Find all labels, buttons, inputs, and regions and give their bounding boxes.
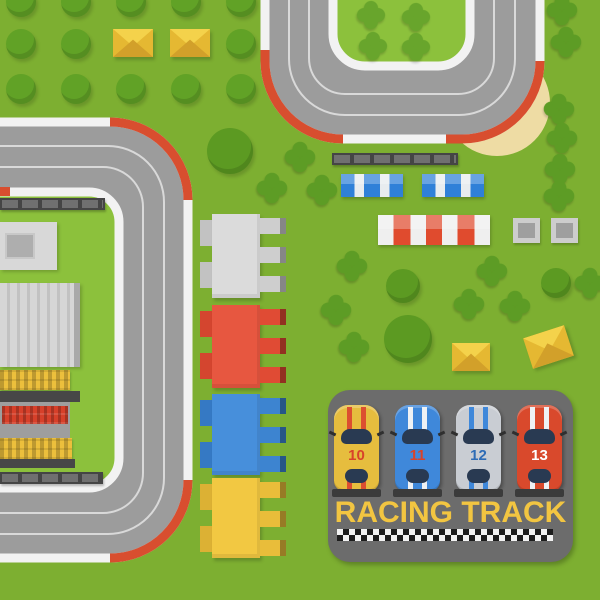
warehouse-roof xyxy=(0,283,80,367)
grandstand-walkway xyxy=(0,459,75,468)
tree-icon xyxy=(384,315,432,363)
concrete-tile xyxy=(513,218,540,243)
pit-building-blue xyxy=(200,394,287,475)
grandstand-yellow-seats xyxy=(0,370,70,390)
rear-window xyxy=(467,469,490,483)
pit-building-red xyxy=(200,305,287,388)
race-car-10: 10 xyxy=(334,405,379,497)
tree-icon xyxy=(116,74,146,104)
grandstand-red-seats xyxy=(2,406,68,424)
car-number: 11 xyxy=(395,447,440,464)
rear-window xyxy=(406,469,429,483)
building-roof xyxy=(212,478,260,558)
barrier-wall xyxy=(332,153,458,165)
building-roof xyxy=(212,214,260,298)
racing-track-illustration: 10 11 12 xyxy=(0,0,600,600)
tree-icon xyxy=(226,29,256,59)
building-tab xyxy=(260,540,286,556)
pit-building-yellow xyxy=(200,478,287,558)
race-car-12: 12 xyxy=(456,405,501,497)
building-tab xyxy=(260,218,286,234)
tree-icon xyxy=(386,269,420,303)
car-number: 12 xyxy=(456,447,501,464)
concrete-tile xyxy=(551,218,578,243)
blue-awning xyxy=(422,174,484,197)
tree-icon xyxy=(6,74,36,104)
tree-icon xyxy=(61,29,91,59)
track-loop-right-infield xyxy=(333,0,470,66)
racing-track-title: RACING TRACK xyxy=(328,496,573,530)
grandstand-yellow-seats xyxy=(0,438,72,459)
tent-icon xyxy=(170,29,210,57)
blue-awning xyxy=(341,174,403,197)
rear-window xyxy=(528,469,551,483)
racing-track-panel: 10 11 12 xyxy=(328,390,573,562)
building-tab xyxy=(260,247,286,263)
tree-icon xyxy=(207,128,253,174)
building-tab xyxy=(260,276,286,292)
tree-icon xyxy=(171,74,201,104)
building-tab xyxy=(260,338,286,354)
building-roof xyxy=(212,394,260,475)
pit-building-white xyxy=(200,214,287,298)
barrier-wall xyxy=(0,198,105,210)
building-tab xyxy=(260,456,286,472)
tree-icon xyxy=(226,74,256,104)
windshield xyxy=(524,429,555,444)
barrier-wall xyxy=(0,472,103,484)
checkered-strip xyxy=(337,529,553,541)
windshield xyxy=(463,429,494,444)
car-number: 13 xyxy=(517,447,562,464)
grandstand-walkway xyxy=(0,391,80,402)
building-tab xyxy=(260,309,286,325)
building-tab xyxy=(260,367,286,383)
race-car-11: 11 xyxy=(395,405,440,497)
building-tab xyxy=(260,482,286,498)
tree-icon xyxy=(541,268,571,298)
curb-red xyxy=(0,187,10,196)
tent-icon xyxy=(452,343,490,371)
race-car-13: 13 xyxy=(517,405,562,497)
red-awning xyxy=(378,215,490,245)
building-tab xyxy=(260,511,286,527)
tent-icon xyxy=(113,29,153,57)
building-tab xyxy=(260,398,286,414)
building-roof xyxy=(212,305,260,388)
rear-window xyxy=(345,469,368,483)
paddock-building xyxy=(0,222,57,270)
windshield xyxy=(341,429,372,444)
building-tab xyxy=(260,427,286,443)
tree-icon xyxy=(6,29,36,59)
windshield xyxy=(402,429,433,444)
car-number: 10 xyxy=(334,447,379,464)
tree-icon xyxy=(61,74,91,104)
